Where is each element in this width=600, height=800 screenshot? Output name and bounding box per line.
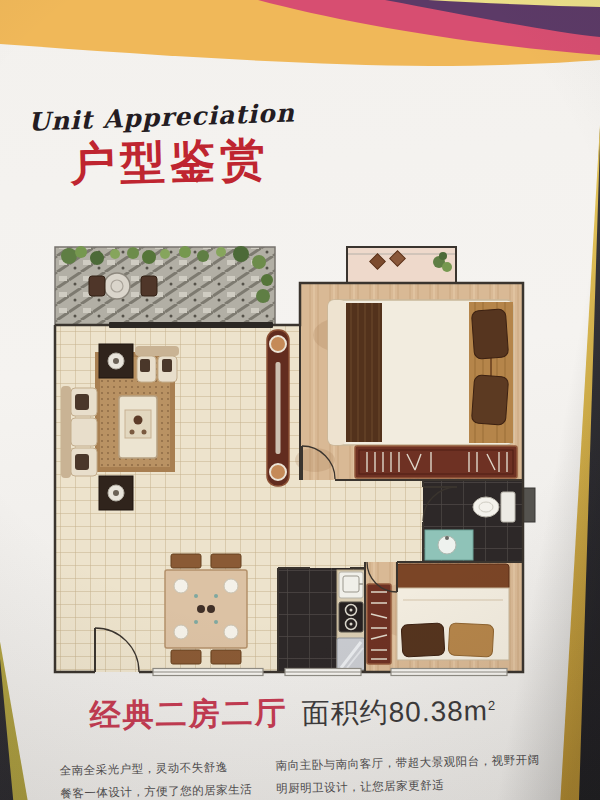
side-table-bottom-dot: [113, 490, 119, 496]
page-title: 户型鉴赏: [69, 129, 271, 194]
master-bedroom: [328, 300, 517, 478]
balcony-slider-door: [109, 322, 273, 328]
banner-swoosh: [0, 0, 600, 80]
feature-line: 全南全采光户型，灵动不失舒逸: [60, 756, 252, 782]
balcony: [55, 246, 275, 325]
windows: [153, 669, 507, 676]
double-bed: [328, 300, 513, 445]
stove: [339, 602, 363, 632]
coffee-table: [119, 396, 157, 458]
caption: 经典二房二厅面积约80.38m2: [0, 688, 586, 738]
balcony-table: [104, 273, 130, 299]
dining-chair: [171, 650, 201, 664]
features-left-column: 全南全采光户型，灵动不失舒逸 餐客一体设计，方便了您的居家生活: [60, 754, 253, 800]
fridge: [337, 638, 365, 670]
tv-cabinet: [267, 330, 289, 486]
poster: Unit Appreciation 户型鉴赏: [0, 0, 600, 800]
second-wardrobe: [367, 584, 391, 664]
dining-chair: [211, 650, 241, 664]
sofa: [61, 386, 97, 478]
kitchen-sink: [339, 572, 363, 598]
feature-line: 餐客一体设计，方便了您的居家生活: [60, 779, 252, 800]
kitchen: [337, 570, 365, 670]
dining-area: [165, 554, 247, 664]
balcony-chair-right: [141, 276, 157, 296]
floor-plan: [45, 240, 545, 680]
master-wardrobe: [355, 446, 517, 478]
second-bed: [397, 564, 509, 660]
side-table-top-dot: [113, 358, 119, 364]
features-right-column: 南向主卧与南向客厅，带超大景观阳台，视野开阔 明厨明卫设计，让您居家更舒适: [275, 748, 540, 800]
dining-chair: [211, 554, 241, 568]
dining-chair: [171, 554, 201, 568]
area-label: 面积约80.38m2: [301, 695, 496, 729]
service-shaft: [523, 488, 535, 522]
balcony-chair-left: [89, 276, 105, 296]
unit-type-label: 经典二房二厅: [89, 695, 287, 733]
feature-descriptions: 全南全采光户型，灵动不失舒逸 餐客一体设计，方便了您的居家生活 南向主卧与南向客…: [0, 746, 600, 800]
bathroom-vanity: [425, 530, 473, 560]
feature-line: 明厨明卫设计，让您居家更舒适: [276, 773, 540, 800]
